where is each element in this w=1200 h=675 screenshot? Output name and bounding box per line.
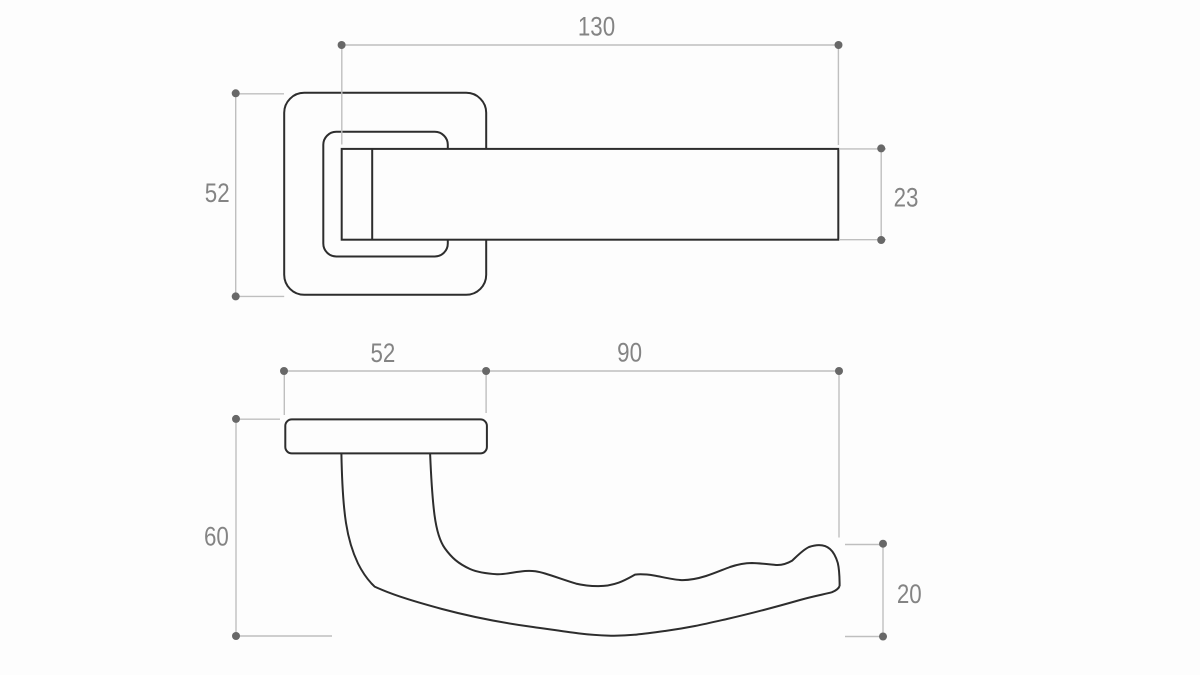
svg-text:60: 60	[204, 523, 229, 552]
svg-text:90: 90	[617, 339, 642, 368]
svg-text:52: 52	[205, 179, 230, 208]
svg-text:52: 52	[370, 339, 395, 368]
svg-text:20: 20	[897, 580, 922, 609]
svg-text:130: 130	[578, 13, 615, 42]
svg-text:23: 23	[894, 184, 919, 213]
